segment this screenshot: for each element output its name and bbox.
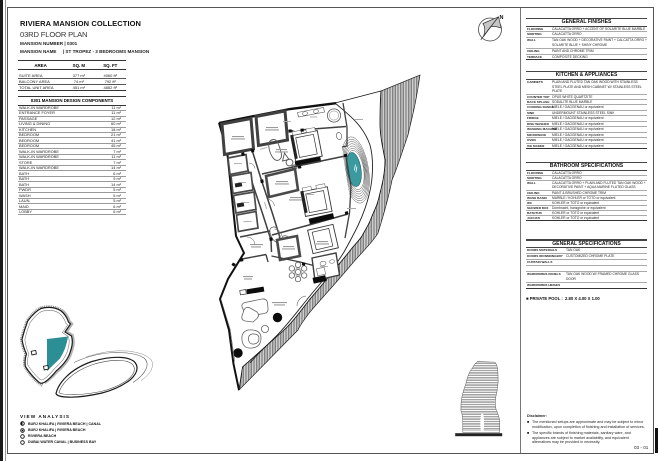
svg-text:N: N <box>500 15 504 21</box>
